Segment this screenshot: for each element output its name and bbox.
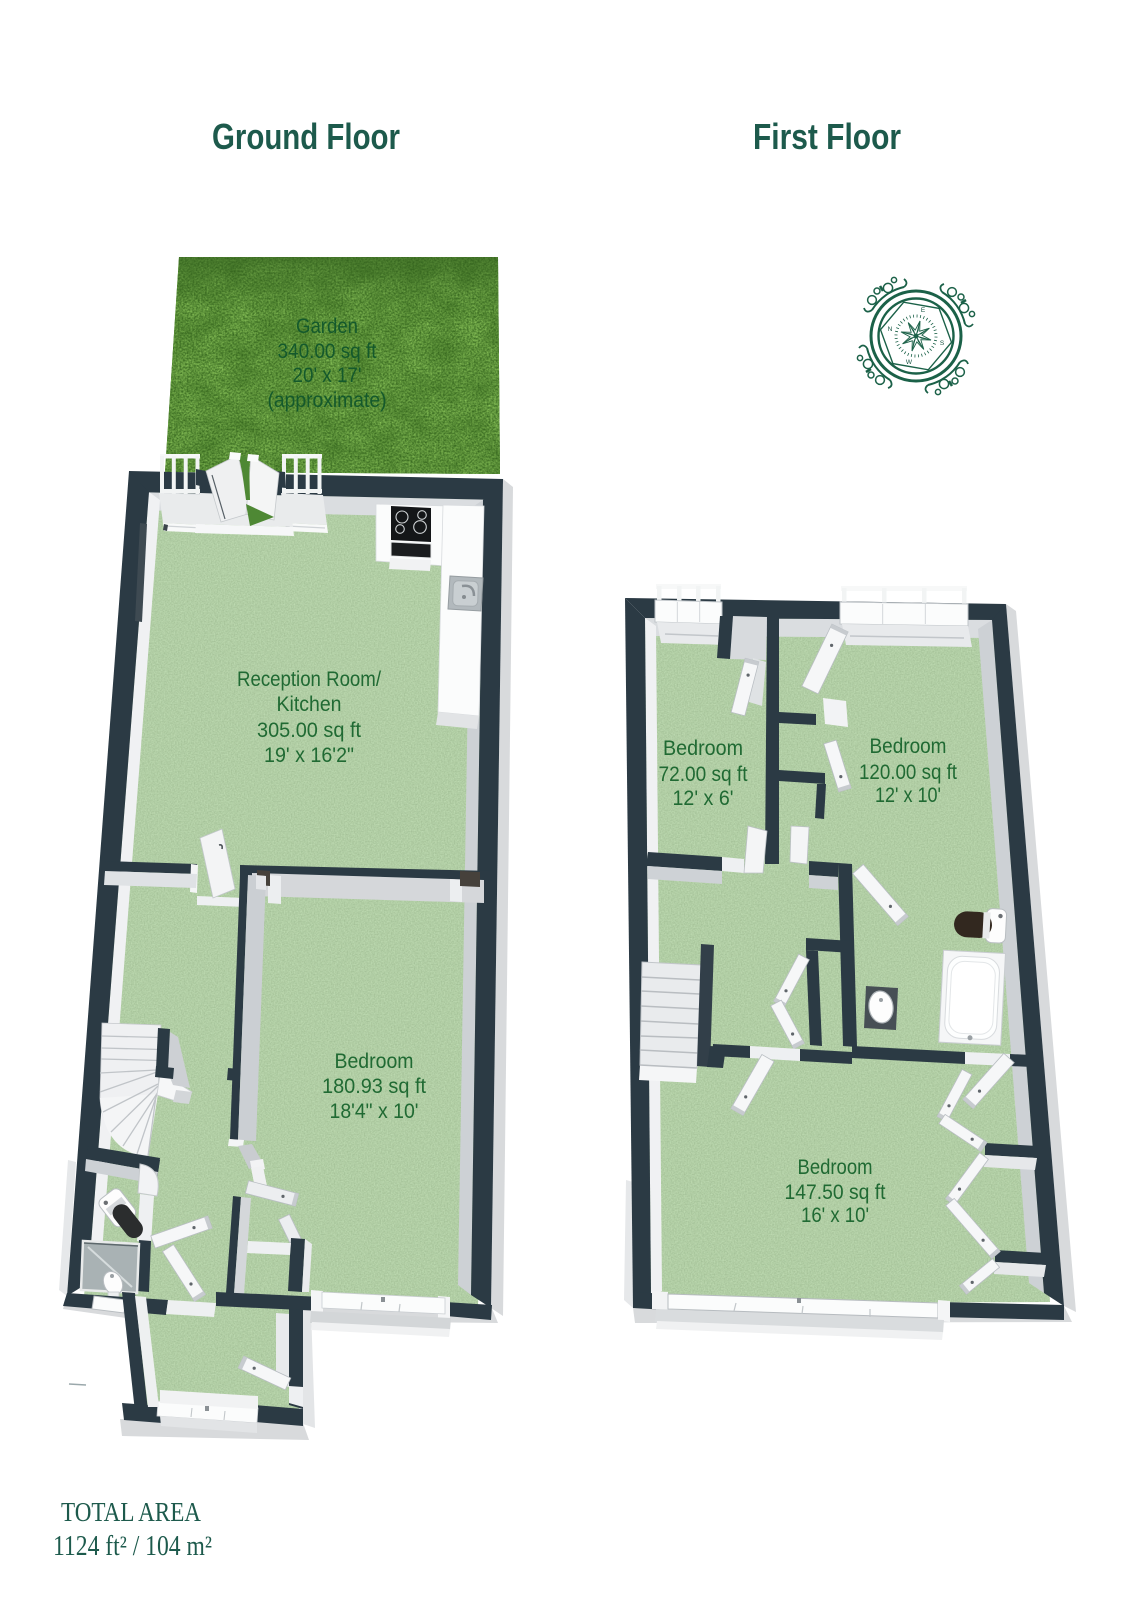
svg-text:Bedroom: Bedroom <box>798 1156 873 1179</box>
svg-text:Reception Room/: Reception Room/ <box>237 668 381 691</box>
svg-text:120.00 sq ft: 120.00 sq ft <box>859 761 957 784</box>
svg-text:180.93 sq ft: 180.93 sq ft <box>322 1075 426 1098</box>
svg-text:Bedroom: Bedroom <box>663 737 743 760</box>
svg-text:Bedroom: Bedroom <box>335 1050 414 1073</box>
svg-text:12' x 6': 12' x 6' <box>673 787 734 810</box>
svg-text:TOTAL AREA: TOTAL AREA <box>61 1497 201 1527</box>
svg-text:147.50 sq ft: 147.50 sq ft <box>785 1181 886 1204</box>
svg-text:E: E <box>921 307 926 314</box>
svg-text:20' x 17': 20' x 17' <box>293 364 362 387</box>
svg-text:Bedroom: Bedroom <box>870 735 947 758</box>
svg-text:305.00 sq ft: 305.00 sq ft <box>257 719 361 742</box>
svg-text:Kitchen: Kitchen <box>277 693 342 716</box>
svg-text:19' x 16'2": 19' x 16'2" <box>264 744 354 767</box>
svg-text:16' x 10': 16' x 10' <box>801 1204 869 1227</box>
svg-text:18'4" x 10': 18'4" x 10' <box>330 1100 419 1123</box>
svg-text:W: W <box>906 359 913 366</box>
svg-text:12' x 10': 12' x 10' <box>875 784 941 807</box>
svg-text:72.00 sq ft: 72.00 sq ft <box>659 763 748 786</box>
svg-text:1124 ft² / 104 m²: 1124 ft² / 104 m² <box>53 1531 212 1562</box>
svg-text:S: S <box>940 340 945 347</box>
svg-text:(approximate): (approximate) <box>268 389 387 412</box>
svg-text:Ground Floor: Ground Floor <box>212 116 400 157</box>
svg-text:First Floor: First Floor <box>753 116 901 157</box>
svg-text:Garden: Garden <box>296 315 358 338</box>
svg-text:N: N <box>888 326 893 333</box>
svg-text:340.00 sq ft: 340.00 sq ft <box>278 340 377 363</box>
